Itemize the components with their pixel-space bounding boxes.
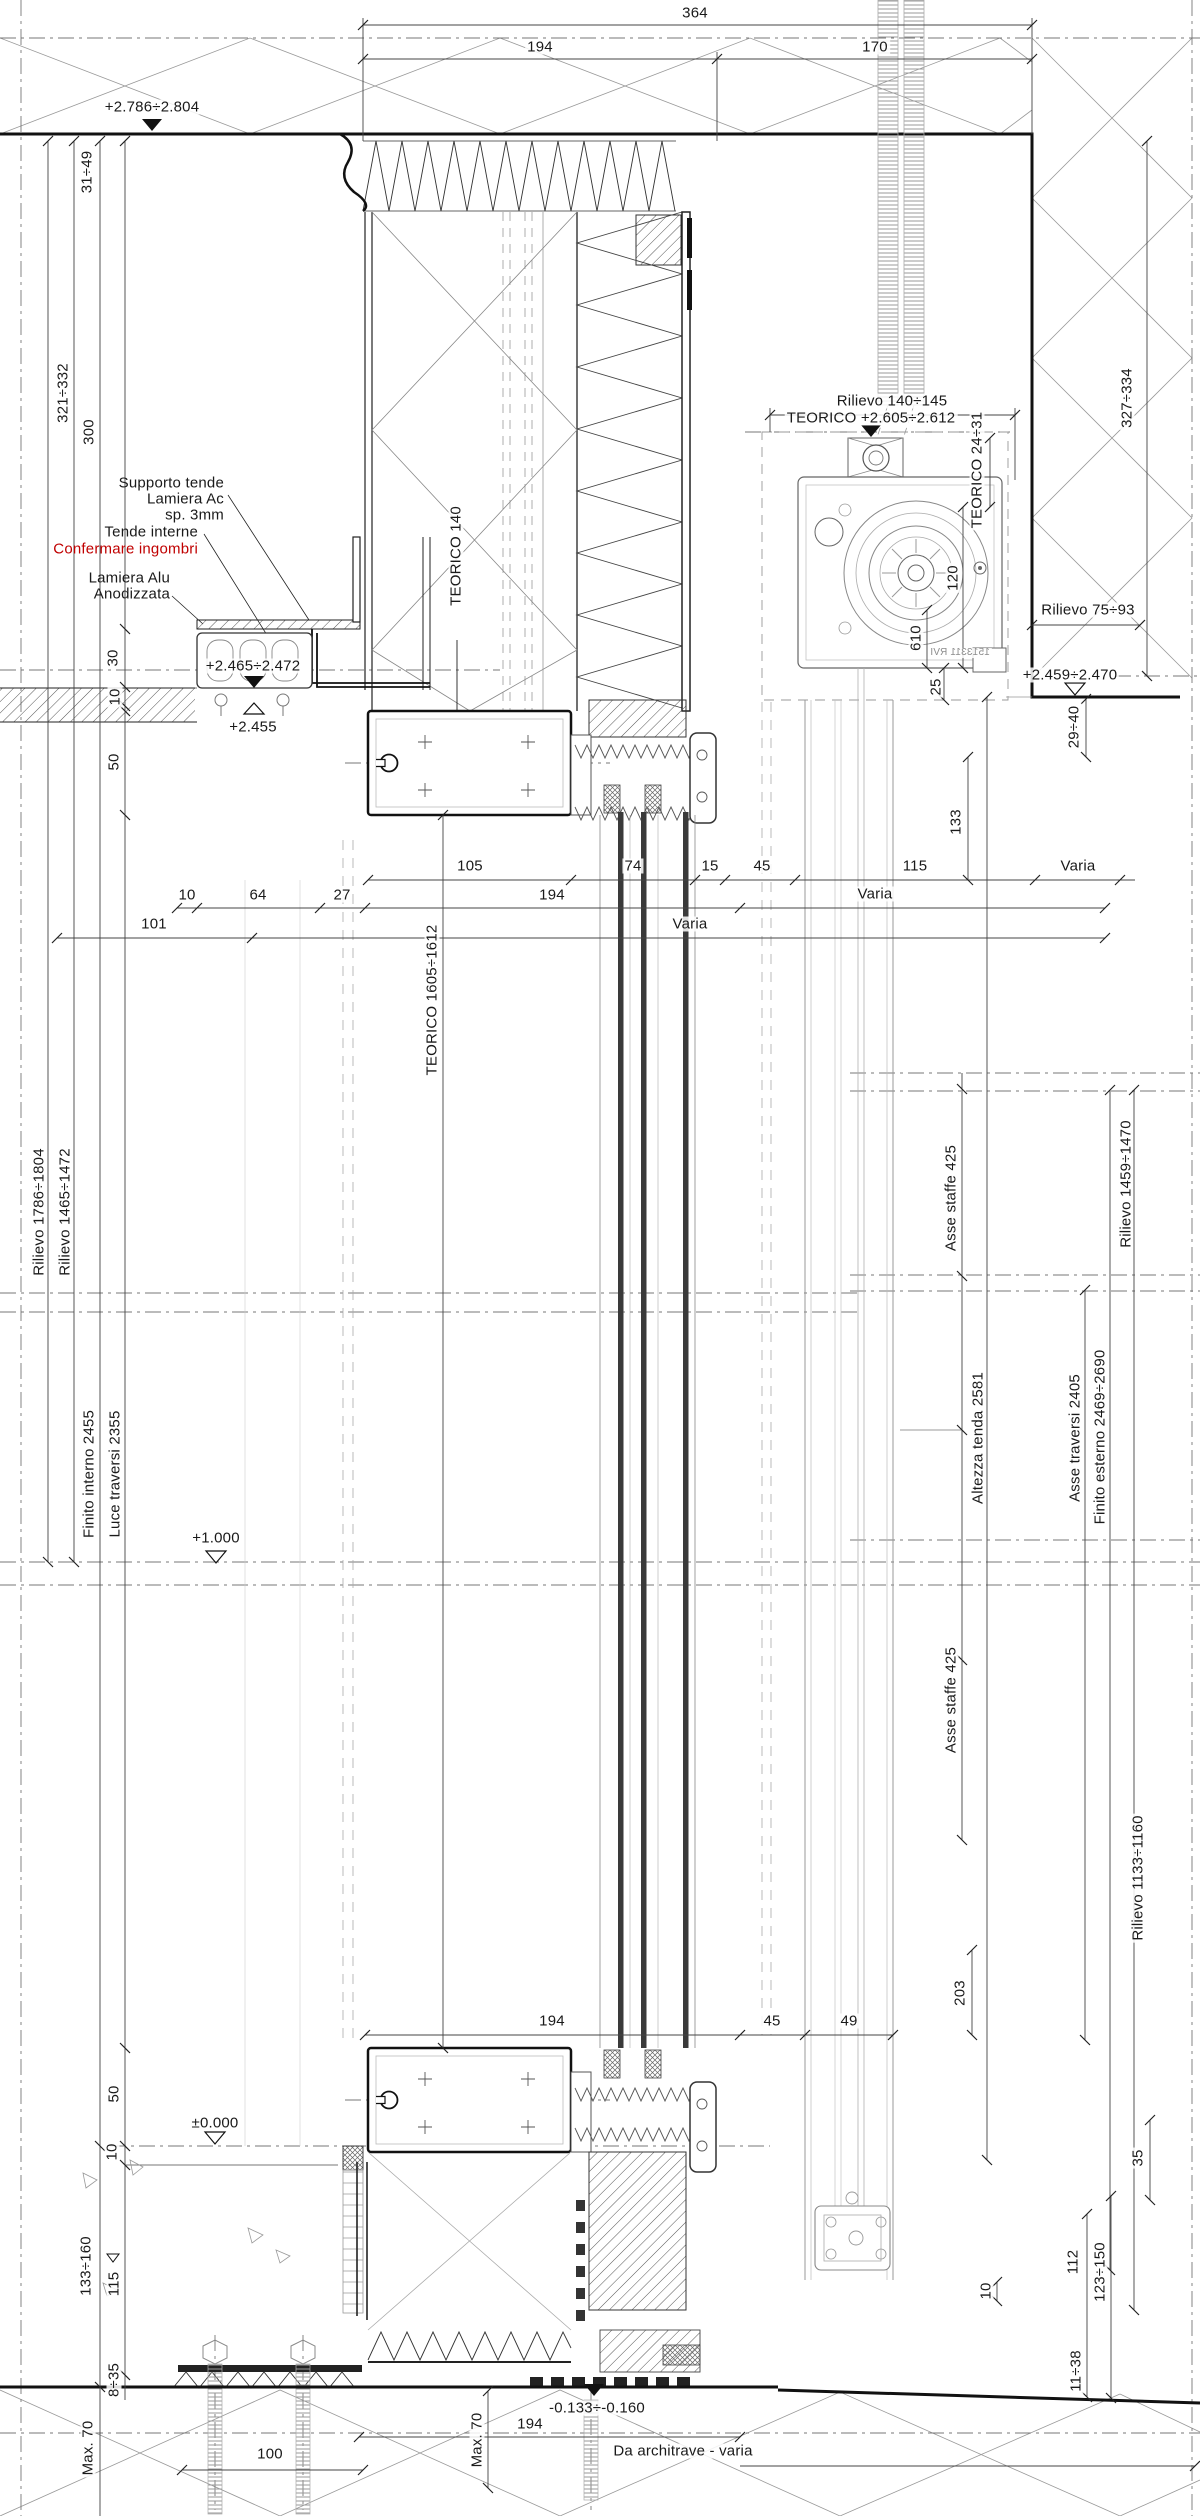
dim-133-160: 133÷160 [79,2234,94,2298]
dim-74: 74 [622,859,643,874]
dim-45-mid: 45 [751,859,772,874]
dim-194-bottom: 194 [515,2417,545,2432]
note-anodizzata: Anodizzata [92,587,172,602]
dim-total-top: 364 [680,6,710,21]
dim-top-right: 170 [860,40,890,55]
dim-11-38: 11÷38 [1069,2348,1084,2394]
dim-50-top: 50 [107,751,122,772]
dim-10-row2: 10 [176,888,197,903]
note-lamiera-ac: Lamiera Ac [145,492,226,507]
dim-133: 133 [949,807,964,837]
dim-luce-traversi-2355: Luce traversi 2355 [108,1408,123,1539]
dim-29-40: 29÷40 [1067,704,1082,751]
dim-varia-3: Varia [671,917,710,932]
level-2459-2470: +2.459÷2.470 [1021,668,1119,683]
section-drawing: 364194170+2.786÷2.80431÷49321÷332300Supp… [0,0,1200,2516]
dim-101: 101 [139,917,169,932]
dim-203: 203 [953,1978,968,2008]
dim-300: 300 [82,417,97,447]
dim-rilievo-1133-1160: Rilievo 1133÷1160 [1131,1813,1146,1942]
dim-finito-esterno: Finito esterno 2469÷2690 [1093,1348,1108,1527]
part-number: 1513311 RVI [928,648,992,658]
dim-max-70-mid: Max. 70 [470,2411,485,2470]
level-2465-2472: +2.465÷2.472 [204,659,302,674]
dim-asse-traversi-2405: Asse traversi 2405 [1068,1372,1083,1504]
dim-15: 15 [699,859,720,874]
dim-rilievo-1465-1472: Rilievo 1465÷1472 [58,1146,73,1278]
dim-25: 25 [929,676,944,697]
note-lamiera-alu: Lamiera Alu [87,571,172,586]
level-soffit: +2.786÷2.804 [103,100,201,115]
dim-610: 610 [909,623,924,653]
dim-rilievo-75-93: Rilievo 75÷93 [1039,603,1136,618]
dim-49: 49 [838,2014,859,2029]
labels-layer: 364194170+2.786÷2.80431÷49321÷332300Supp… [0,0,1200,2516]
dim-8-35: 8÷35 [107,2361,122,2399]
label-teorico-140: TEORICO 140 [449,504,464,608]
dim-120: 120 [946,563,961,593]
dim-10-guide: 10 [979,2280,994,2301]
dim-64: 64 [247,888,268,903]
dim-asse-staffe-425-b: Asse staffe 425 [944,1645,959,1755]
note-da-architrave: Da architrave - varia [611,2444,754,2459]
dim-100: 100 [255,2447,285,2462]
dim-194-mid: 194 [537,888,567,903]
label-teorico-1605-1612: TEORICO 1605÷1612 [425,923,440,1078]
dim-rilievo-140-145: Rilievo 140÷145 [835,394,949,409]
dim-10-floor: 10 [105,2141,120,2162]
dim-327-334: 327÷334 [1120,366,1135,430]
dim-rilievo-1459-1470: Rilievo 1459÷1470 [1119,1118,1134,1250]
dim-30: 30 [106,647,121,668]
dim-194-low: 194 [537,2014,567,2029]
dim-top-left: 194 [525,40,555,55]
dim-max-70-left: Max. 70 [81,2419,96,2478]
level-teorico-2605-2612: TEORICO +2.605÷2.612 [785,411,958,426]
dim-35: 35 [1131,2147,1146,2168]
dim-rilievo-1786-1804: Rilievo 1786÷1804 [32,1146,47,1278]
dim-123-150: 123÷150 [1093,2240,1108,2304]
level-0000: ±0.000 [190,2116,241,2131]
dim-31-49: 31÷49 [80,149,95,196]
dim-varia-1: Varia [1059,859,1098,874]
dim-10-ceiling: 10 [108,686,123,707]
dim-varia-2: Varia [856,887,895,902]
dim-50-low: 50 [107,2083,122,2104]
dim-altezza-tenda-2581: Altezza tenda 2581 [971,1370,986,1506]
dim-105: 105 [455,859,485,874]
note-tende-interne: Tende interne [102,525,200,540]
dim-45-low: 45 [761,2014,782,2029]
dim-321-332: 321÷332 [56,361,71,425]
level-1000: +1.000 [190,1531,242,1546]
level-minus-0133-0160: -0.133÷-0.160 [547,2401,647,2416]
note-supporto-tende: Supporto tende [117,476,226,491]
note-sp-3mm: sp. 3mm [163,508,226,523]
dim-112: 112 [1066,2248,1081,2277]
note-confermare-ingombri: Confermare ingombri [51,542,200,557]
dim-asse-staffe-425-a: Asse staffe 425 [944,1143,959,1253]
level-2455: +2.455 [227,720,279,735]
dim-finito-interno-2455: Finito interno 2455 [82,1408,97,1540]
dim-115-low: 115 [107,2270,122,2299]
dim-27: 27 [331,888,352,903]
dim-115: 115 [901,859,930,874]
dim-teorico-24-31: TEORICO 24÷31 [970,410,985,531]
